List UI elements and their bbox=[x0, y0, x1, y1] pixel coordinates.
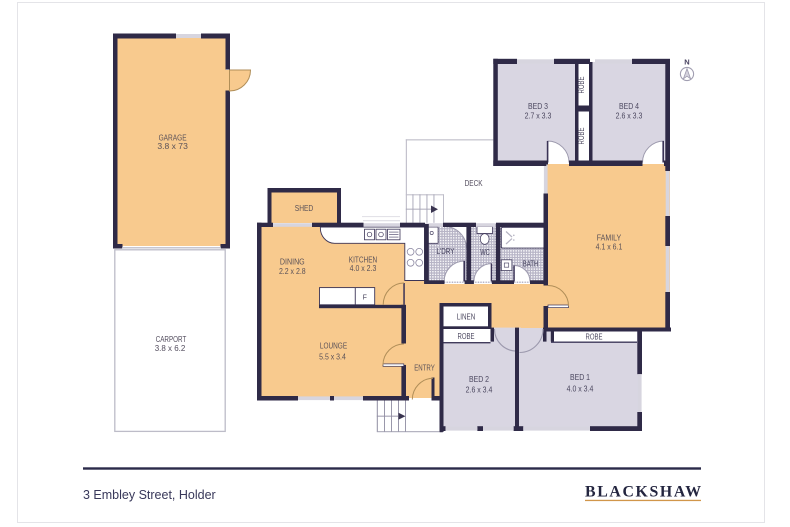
svg-text:4.0 x 2.3: 4.0 x 2.3 bbox=[350, 263, 377, 273]
svg-text:LOUNGE: LOUNGE bbox=[320, 340, 347, 350]
svg-text:SHED: SHED bbox=[295, 203, 314, 213]
svg-text:ROBE: ROBE bbox=[586, 332, 603, 341]
svg-text:WC: WC bbox=[480, 247, 490, 257]
svg-text:F: F bbox=[363, 294, 367, 301]
svg-text:BED 3: BED 3 bbox=[528, 101, 548, 111]
svg-text:LINEN: LINEN bbox=[457, 312, 476, 321]
svg-text:ENTRY: ENTRY bbox=[414, 362, 435, 372]
svg-text:3.8 x 73: 3.8 x 73 bbox=[157, 141, 188, 151]
svg-text:BED 4: BED 4 bbox=[619, 101, 639, 111]
svg-text:ROBE: ROBE bbox=[577, 77, 586, 94]
svg-text:BED 2: BED 2 bbox=[469, 374, 489, 384]
svg-text:4.1 x 6.1: 4.1 x 6.1 bbox=[596, 241, 623, 251]
svg-text:L'DRY: L'DRY bbox=[437, 246, 455, 256]
svg-text:ROBE: ROBE bbox=[577, 128, 586, 145]
svg-text:3 Embley Street, Holder: 3 Embley Street, Holder bbox=[83, 488, 216, 502]
svg-text:2.7 x 3.3: 2.7 x 3.3 bbox=[525, 111, 552, 121]
svg-text:BATH: BATH bbox=[523, 259, 539, 269]
svg-text:DINING: DINING bbox=[280, 256, 305, 266]
svg-text:2.6 x 3.4: 2.6 x 3.4 bbox=[466, 385, 493, 395]
svg-text:2.2 x 2.8: 2.2 x 2.8 bbox=[279, 266, 306, 276]
svg-text:3.8 x 6.2: 3.8 x 6.2 bbox=[155, 343, 186, 353]
svg-text:ROBE: ROBE bbox=[458, 332, 475, 341]
svg-text:DECK: DECK bbox=[465, 178, 483, 188]
svg-text:BED 1: BED 1 bbox=[570, 372, 590, 382]
svg-text:N: N bbox=[684, 58, 689, 67]
svg-text:5.5 x 3.4: 5.5 x 3.4 bbox=[319, 351, 346, 361]
svg-text:2.6 x 3.3: 2.6 x 3.3 bbox=[616, 111, 643, 121]
svg-text:4.0 x 3.4: 4.0 x 3.4 bbox=[567, 384, 594, 394]
